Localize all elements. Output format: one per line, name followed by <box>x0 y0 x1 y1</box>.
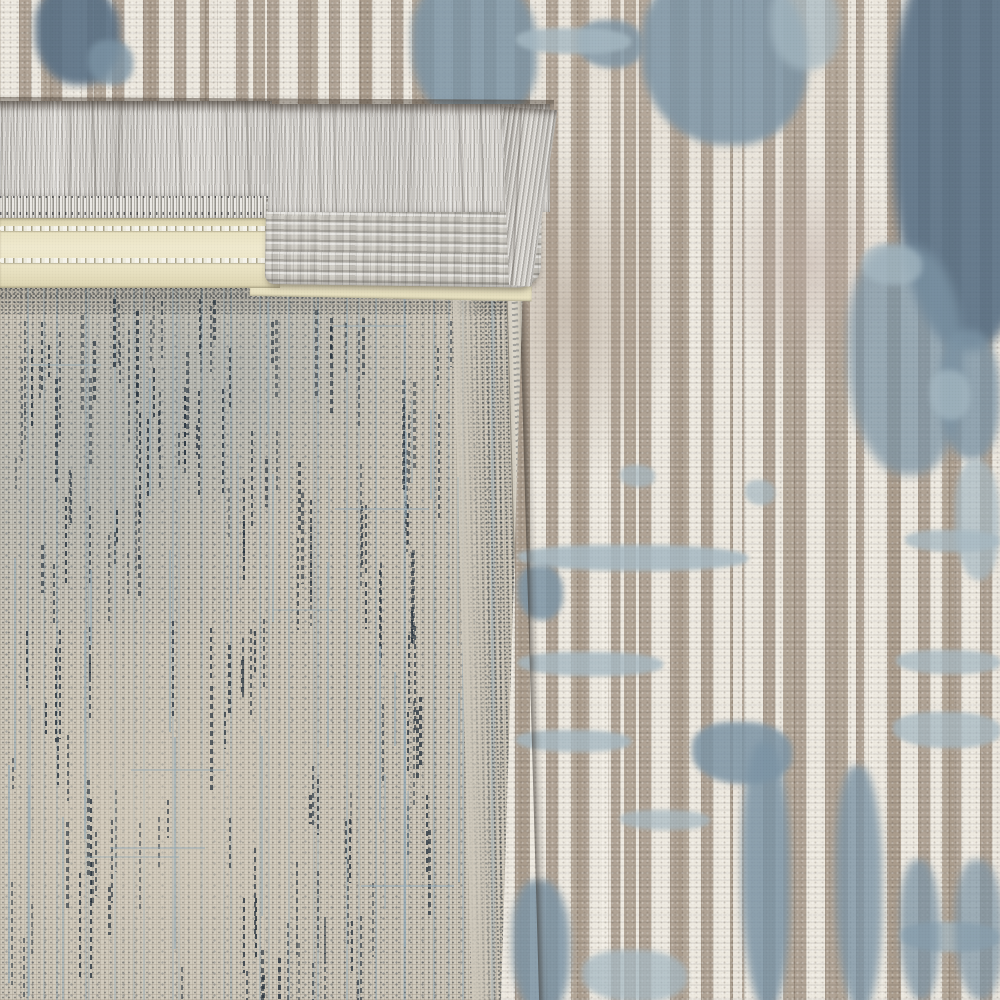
backing-dash-column <box>243 479 245 559</box>
backing-dash-column <box>108 535 110 625</box>
fringe-thread-slit <box>408 104 414 212</box>
backing-dash-column <box>181 967 183 1000</box>
backing-warp-line <box>237 453 239 594</box>
fringe-left <box>0 101 272 196</box>
backing-warp-line <box>384 774 386 909</box>
fringe-thread-slit <box>205 101 210 196</box>
backing-dash-column <box>210 306 212 372</box>
backing-dash-column <box>360 916 362 1000</box>
backing-dash-column <box>382 704 384 783</box>
backing-dash-column <box>158 411 160 452</box>
backing-dash-column <box>347 859 349 943</box>
backing-dash-column <box>178 433 180 468</box>
backing-dash-column <box>41 322 43 394</box>
backing-weft-dash <box>272 609 337 611</box>
backing-weft-dash <box>31 364 101 366</box>
fringe-thread-slit <box>458 104 465 212</box>
backing-dash-column <box>65 497 67 588</box>
backing-dash-column <box>345 323 347 372</box>
backing-dash-column <box>317 779 319 836</box>
backing-dash-column <box>39 366 41 399</box>
backing-dash-column <box>89 378 92 464</box>
backing-dash-column <box>210 628 212 682</box>
backing-dash-column <box>53 564 55 625</box>
fringe-thread-slit <box>196 101 202 196</box>
backing-warp-line <box>394 672 396 745</box>
backing-dash-column <box>153 297 155 338</box>
blue-fleck <box>930 370 970 420</box>
fringe-thread-slit <box>245 101 251 196</box>
blue-fleck <box>516 28 631 54</box>
pile-fold-shadow <box>0 97 554 115</box>
backing-dash-column <box>67 735 69 802</box>
backing-dash-column <box>59 332 61 442</box>
backing-dash-column <box>229 818 231 869</box>
rug-photo: Close-up photograph of a machine-woven a… <box>0 0 1000 1000</box>
backing-warp-line <box>62 817 64 1000</box>
backing-dash-column <box>31 904 33 958</box>
backing-dash-column <box>115 790 117 872</box>
backing-dash-column <box>138 501 140 558</box>
fringe-thread-slit <box>116 101 122 196</box>
backing-dash-column <box>222 389 224 496</box>
backing-dash-column <box>228 488 230 537</box>
backing-dash-column <box>365 582 367 629</box>
backing-dash-column <box>111 820 113 903</box>
backing-dash-column <box>116 510 118 544</box>
blue-fleck <box>905 530 1000 552</box>
backing-dash-column <box>345 821 347 860</box>
blue-fleck <box>582 950 687 1000</box>
backing-dash-column <box>261 950 264 1000</box>
backing-warp-line <box>261 736 263 916</box>
backing-dash-column <box>23 938 25 1000</box>
backing-dash-column <box>135 485 137 573</box>
backing-dash-column <box>26 631 28 688</box>
backing-weft-dash <box>333 325 407 327</box>
backing-dash-column <box>229 348 231 409</box>
backing-dash-column <box>350 793 352 835</box>
backing-dash-column <box>241 660 244 695</box>
fringe-thread-slit <box>57 101 62 196</box>
backing-dash-column <box>128 330 130 442</box>
fringe-thread-slit <box>68 101 71 196</box>
backing-dash-column <box>372 883 374 957</box>
backing-dash-column <box>296 862 298 956</box>
backing-dash-column <box>24 408 26 441</box>
backing-dash-column <box>184 387 186 475</box>
backing-dash-column <box>419 697 422 768</box>
backing-dash-column <box>312 766 314 827</box>
fringe-thread-slit <box>480 104 484 212</box>
backing-dash-column <box>158 817 160 871</box>
backing-dash-column <box>55 379 58 482</box>
backing-warp-line <box>328 474 330 597</box>
backing-dash-column <box>48 345 50 381</box>
backing-dash-column <box>119 343 121 383</box>
backing-dash-column <box>408 635 410 709</box>
backing-dash-column <box>246 971 248 1000</box>
fringe-thread-slit <box>333 104 337 212</box>
fringe-thread-slit <box>178 101 184 196</box>
backing-dash-column <box>271 322 274 363</box>
backing-dash-column <box>114 532 116 566</box>
binding-tape <box>0 218 280 288</box>
backing-warp-line <box>84 630 86 839</box>
blue-fleck <box>900 860 940 1000</box>
backing-dash-column <box>351 921 353 975</box>
backing-warp-line <box>411 399 413 483</box>
backing-dash-column <box>263 619 265 689</box>
backing-dash-column <box>21 359 23 461</box>
backing-dash-column <box>161 301 163 358</box>
backing-dash-column <box>139 823 141 911</box>
backing-dash-column <box>15 458 17 489</box>
backing-warp-line <box>407 791 409 880</box>
backing-dash-column <box>127 553 129 596</box>
backing-dash-column <box>276 431 278 493</box>
backing-dash-column <box>407 712 409 773</box>
backing-dash-column <box>297 538 299 630</box>
blue-fleck <box>518 565 563 620</box>
backing-dash-column <box>172 621 174 718</box>
backing-dash-column <box>298 462 301 534</box>
fringe-thread-slit <box>285 104 292 212</box>
backing-dash-column <box>138 555 141 596</box>
backing-warp-line <box>8 765 10 983</box>
backing-dash-column <box>59 630 61 739</box>
backing-dash-column <box>136 382 138 468</box>
backing-dash-column <box>198 391 200 499</box>
blue-fleck <box>836 766 882 1000</box>
fringe-thread-slit <box>295 104 299 212</box>
fringe-thread-slit <box>36 101 40 196</box>
backing-dash-column <box>428 830 431 915</box>
fringe-thread-slit <box>71 101 73 196</box>
fringe-thread-slit <box>153 101 160 196</box>
backing-dash-column <box>55 648 57 742</box>
backing-dash-column <box>213 300 216 340</box>
fringe-thread-slit <box>449 104 452 212</box>
backing-dash-column <box>437 348 439 386</box>
fringe-thread-slit <box>224 101 229 196</box>
backing-warp-line <box>90 570 92 645</box>
backing-warp-line <box>458 693 460 882</box>
backing-warp-line <box>149 378 151 495</box>
backing-weft-dash <box>361 885 454 887</box>
backing-dash-column <box>66 822 69 912</box>
blue-fleck <box>88 40 133 85</box>
backing-dash-column <box>287 923 289 1000</box>
backing-dash-column <box>95 832 97 895</box>
backing-dash-column <box>254 848 256 933</box>
backing-dash-column <box>251 431 253 529</box>
fringe-thread-slit <box>430 104 436 212</box>
backing-dash-column <box>426 795 428 876</box>
backing-dash-column <box>357 980 359 1000</box>
backing-dash-column <box>90 799 92 902</box>
header-dot-row <box>0 212 274 215</box>
backing-warp-line <box>379 646 381 821</box>
backing-warp-line <box>404 719 406 947</box>
backing-warp-line <box>14 558 16 770</box>
backing-dash-column <box>360 464 362 587</box>
backing-dash-column <box>90 901 92 979</box>
blue-fleck <box>955 460 1000 580</box>
backing-dash-column <box>79 873 81 979</box>
backing-weft-dash <box>85 856 180 858</box>
backing-dash-column <box>70 473 72 527</box>
stitch-row <box>0 258 280 263</box>
backing-dash-column <box>312 963 314 1000</box>
backing-dash-column <box>31 349 33 426</box>
blue-fleck <box>620 810 710 830</box>
backing-dash-column <box>365 505 367 577</box>
backing-dash-column <box>167 800 169 838</box>
backing-dash-column <box>11 882 13 986</box>
fringe-thread-slit <box>396 104 401 212</box>
blue-fleck <box>620 465 655 487</box>
backing-warp-line <box>430 410 432 499</box>
backing-dash-column <box>93 341 96 404</box>
backing-dash-column <box>200 315 202 372</box>
backing-weft-dash <box>335 508 428 510</box>
blue-fleck <box>896 650 1000 674</box>
backing-dash-column <box>278 958 281 1000</box>
backing-dash-column <box>196 425 198 455</box>
fringe-thread-slit <box>299 104 303 212</box>
backing-warp-line <box>405 432 407 517</box>
blue-fleck <box>862 245 922 285</box>
backing-warp-line <box>272 474 274 622</box>
backing-dash-column <box>438 414 440 517</box>
backing-dash-column <box>413 382 416 470</box>
backing-warp-line <box>457 477 459 646</box>
backing-dash-column <box>358 331 360 430</box>
backing-dash-column <box>301 493 304 585</box>
backing-dash-column <box>24 321 26 415</box>
backing-warp-line <box>267 302 269 434</box>
stitch-row <box>0 226 280 231</box>
backing-dash-column <box>150 320 152 364</box>
backing-dash-column <box>411 611 413 647</box>
backing-dash-column <box>243 898 245 973</box>
fringe-thread-slit <box>91 101 96 196</box>
blue-fleck <box>955 860 1000 1000</box>
backing-dash-column <box>41 545 44 593</box>
backing-dash-column <box>315 310 318 397</box>
backing-warp-line <box>28 785 30 996</box>
blue-fleck <box>893 712 1000 748</box>
backing-dash-column <box>414 626 416 731</box>
backing-dash-column <box>57 737 59 786</box>
backing-dash-column <box>224 712 226 749</box>
backing-dash-column <box>250 629 252 718</box>
backing-dash-column <box>113 299 116 369</box>
blue-fleck <box>745 480 775 505</box>
backing-dash-column <box>228 645 231 715</box>
backing-dash-column <box>210 686 213 790</box>
backing-dash-column <box>254 631 256 672</box>
backing-dash-column <box>317 871 319 949</box>
backing-dash-column <box>153 368 155 417</box>
backing-dash-column <box>265 459 268 507</box>
fringe-thread-slit <box>318 104 322 212</box>
backing-dash-column <box>450 321 452 367</box>
backing-dash-column <box>324 917 326 964</box>
backing-dash-column <box>275 320 278 401</box>
backing-weft-dash <box>131 769 226 771</box>
backing-dash-column <box>408 415 410 484</box>
blue-fleck <box>518 545 748 571</box>
backing-warp-line <box>169 550 171 733</box>
backing-dash-column <box>298 943 300 1000</box>
backing-dash-column <box>45 703 47 734</box>
backing-weft-dash <box>110 847 205 849</box>
backing-dash-column <box>330 326 332 360</box>
blue-fleck <box>742 742 790 1000</box>
